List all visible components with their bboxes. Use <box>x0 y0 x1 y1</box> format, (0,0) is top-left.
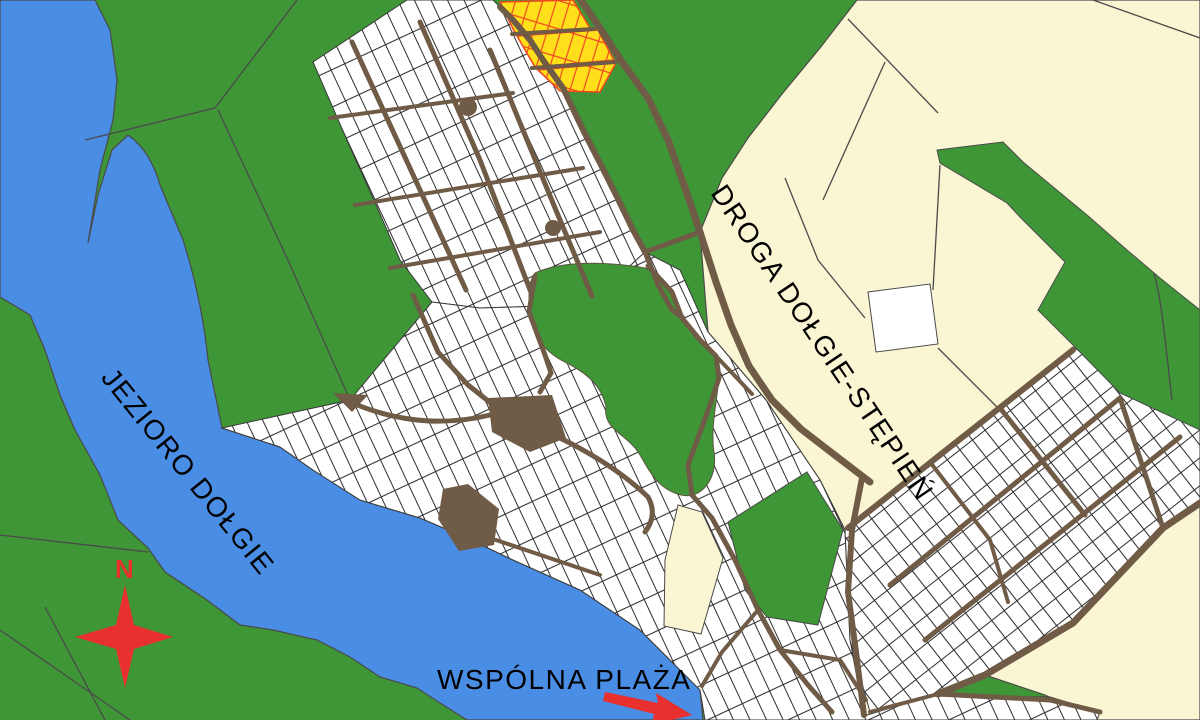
compass-north-label: N <box>115 554 134 584</box>
cul-de-sac-circle <box>459 98 477 116</box>
field-parcel-square <box>868 284 938 352</box>
map-canvas[interactable]: JEZIORO DOŁGIE DROGA DOŁGIE-STĘPIEŃ WSPÓ… <box>0 0 1200 720</box>
zoning-map: JEZIORO DOŁGIE DROGA DOŁGIE-STĘPIEŃ WSPÓ… <box>0 0 1200 720</box>
cul-de-sac-circle <box>545 220 561 236</box>
beach-label: WSPÓLNA PLAŻA <box>437 664 691 695</box>
